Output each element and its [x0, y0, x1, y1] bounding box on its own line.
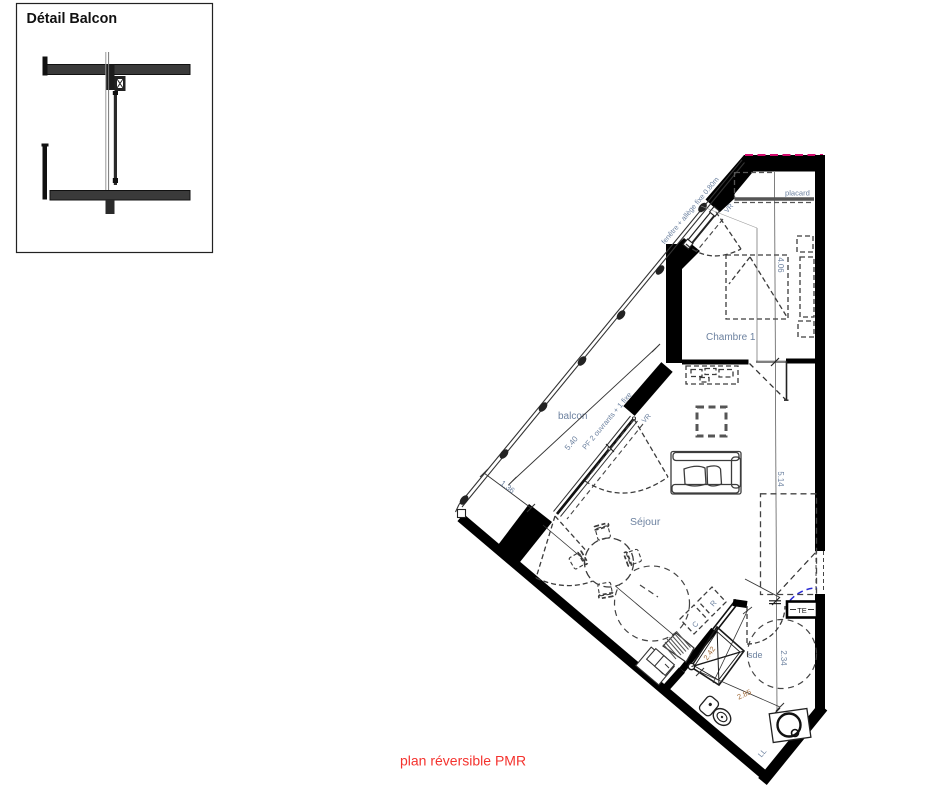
svg-text:plan réversible PMR: plan réversible PMR [400, 753, 526, 769]
svg-text:4.06: 4.06 [776, 257, 785, 272]
svg-text:Détail Balcon: Détail Balcon [27, 11, 118, 27]
svg-text:balcon: balcon [558, 411, 587, 422]
svg-text:Séjour: Séjour [630, 516, 661, 528]
svg-text:5.14: 5.14 [776, 471, 785, 487]
svg-text:2.34: 2.34 [779, 650, 788, 666]
svg-text:TE: TE [797, 606, 807, 615]
svg-text:Chambre 1: Chambre 1 [706, 332, 756, 343]
svg-text:placard: placard [785, 189, 810, 198]
svg-text:sde: sde [748, 650, 763, 660]
